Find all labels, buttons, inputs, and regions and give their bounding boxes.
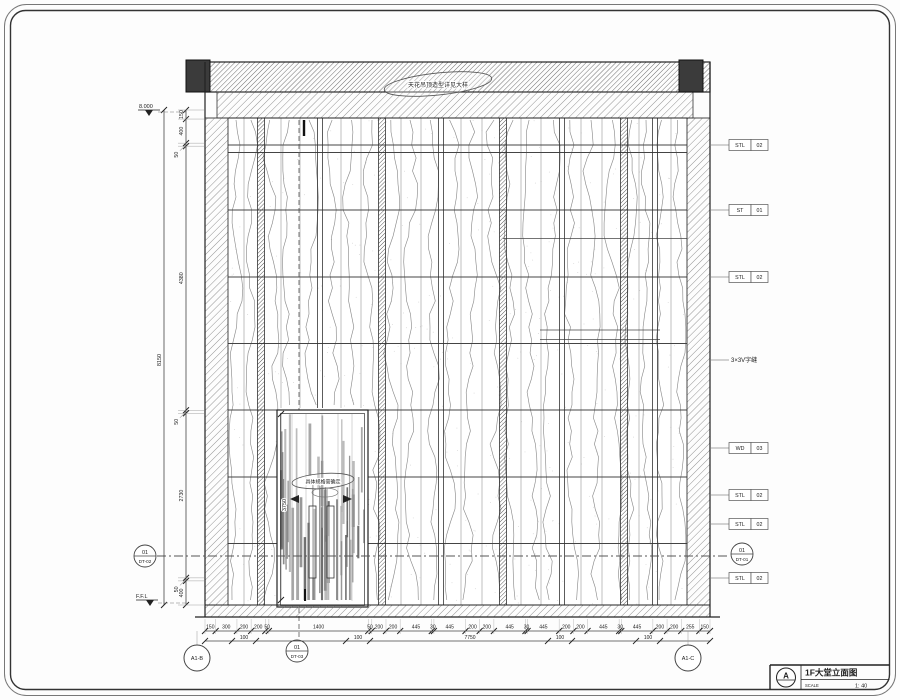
material-tags: STL02ST01STL02WD03STL02STL02STL023×3V字缝 bbox=[711, 140, 768, 584]
material-tag: STL02 bbox=[711, 519, 768, 530]
dim-label: 400 bbox=[179, 588, 185, 597]
dim-label: 200 bbox=[670, 625, 679, 631]
material-tag: WD03 bbox=[711, 443, 768, 454]
dim-label: 445 bbox=[599, 625, 608, 631]
svg-text:02: 02 bbox=[757, 275, 763, 281]
svg-text:WD: WD bbox=[736, 446, 745, 452]
scale-label: SCALE bbox=[805, 683, 819, 688]
svg-text:A1-B: A1-B bbox=[191, 656, 204, 662]
dim-label: 255 bbox=[686, 625, 695, 631]
door-height-label: 3750 bbox=[282, 499, 288, 511]
dim-label: 200 bbox=[254, 625, 263, 631]
dim-label: 100 bbox=[644, 635, 653, 641]
svg-text:STL: STL bbox=[735, 143, 745, 149]
dim-label: 200 bbox=[240, 625, 249, 631]
svg-text:01: 01 bbox=[739, 548, 745, 554]
floor-level-label: F.F.L bbox=[136, 594, 148, 600]
dim-label: 400 bbox=[179, 127, 185, 136]
dim-label: 50 bbox=[367, 625, 373, 631]
dim-label: 100 bbox=[240, 635, 249, 641]
dim-label: 200 bbox=[468, 625, 477, 631]
svg-text:DT-01: DT-01 bbox=[736, 557, 749, 562]
scale-value: 1: 40 bbox=[855, 684, 867, 690]
dim-label: 150 bbox=[701, 625, 710, 631]
dim-label: 300 bbox=[222, 625, 231, 631]
level-triangle-icon bbox=[145, 110, 153, 116]
groove-note: 3×3V字缝 bbox=[731, 356, 757, 364]
dim-label: 445 bbox=[539, 625, 548, 631]
detail-ref-bubble: 01DT-02 bbox=[134, 545, 156, 567]
material-tag: STL02 bbox=[711, 140, 768, 151]
svg-text:01: 01 bbox=[294, 645, 300, 651]
dim-label: 30 bbox=[430, 625, 436, 631]
door-pull-right bbox=[327, 506, 334, 578]
grid-bubbles: A1-BA1-C bbox=[184, 631, 701, 671]
door-feature-panel bbox=[277, 410, 368, 607]
door-pull-left bbox=[309, 506, 316, 578]
svg-text:STL: STL bbox=[735, 576, 745, 582]
svg-text:02: 02 bbox=[757, 143, 763, 149]
bottom-dimension-chain: 1503002002005014005020020044530445200200… bbox=[202, 619, 713, 644]
svg-text:STL: STL bbox=[735, 275, 745, 281]
material-tag: STL02 bbox=[711, 573, 768, 584]
door-note-text: 具体规格需确定 bbox=[305, 479, 340, 486]
dim-label: 30 bbox=[617, 625, 623, 631]
dim-label: 445 bbox=[446, 625, 455, 631]
dim-label: 445 bbox=[505, 625, 514, 631]
ceiling-note-text: 天花吊顶造型详见大样 bbox=[408, 81, 468, 89]
svg-text:ST: ST bbox=[737, 208, 745, 214]
material-tag: ST01 bbox=[711, 205, 768, 216]
elevation-drawing: 具体规格需确定3750天花吊顶造型详见大样1504005043805027305… bbox=[134, 60, 768, 671]
svg-text:02: 02 bbox=[757, 493, 763, 499]
detail-ref-bubble: 01DT-01 bbox=[731, 543, 753, 565]
svg-text:02: 02 bbox=[757, 576, 763, 582]
detail-letter: A bbox=[783, 672, 789, 681]
elevation-sheet-svg: 具体规格需确定3750天花吊顶造型详见大样1504005043805027305… bbox=[0, 0, 900, 700]
detail-ref-bubble: 01DT-03 bbox=[286, 640, 308, 662]
column-section-right bbox=[679, 60, 703, 92]
dim-label: 445 bbox=[412, 625, 421, 631]
dim-label: 100 bbox=[556, 635, 565, 641]
dim-label: 50 bbox=[174, 419, 180, 425]
total-height-label: 8150 bbox=[157, 354, 163, 366]
dim-label: 50 bbox=[264, 625, 270, 631]
left-dimension-chain: 150400504380502730504008150 bbox=[157, 107, 204, 608]
dim-label: 200 bbox=[389, 625, 398, 631]
top-level-label: 8.000 bbox=[139, 104, 153, 110]
dim-label: 200 bbox=[375, 625, 384, 631]
dim-label: 200 bbox=[656, 625, 665, 631]
material-tag: STL02 bbox=[711, 490, 768, 501]
svg-text:STL: STL bbox=[735, 522, 745, 528]
dim-label: 7750 bbox=[464, 635, 475, 641]
column-section-left bbox=[186, 60, 210, 92]
dim-label: 2730 bbox=[179, 490, 185, 502]
svg-text:01: 01 bbox=[142, 550, 148, 556]
dim-label: 445 bbox=[633, 625, 642, 631]
dim-label: 4380 bbox=[179, 272, 185, 284]
dim-label: 150 bbox=[179, 110, 185, 119]
svg-text:02: 02 bbox=[757, 522, 763, 528]
title-block: A 1F大堂立面图 SCALE 1: 40 bbox=[770, 665, 890, 690]
svg-text:03: 03 bbox=[757, 446, 763, 452]
material-tag: STL02 bbox=[711, 272, 768, 283]
drawing-title: 1F大堂立面图 bbox=[805, 668, 857, 678]
dim-label: 50 bbox=[174, 152, 180, 158]
drawing-sheet: 具体规格需确定3750天花吊顶造型详见大样1504005043805027305… bbox=[0, 0, 900, 700]
svg-text:DT-02: DT-02 bbox=[139, 559, 152, 564]
dim-label: 1400 bbox=[313, 625, 324, 631]
svg-text:A1-C: A1-C bbox=[682, 656, 695, 662]
svg-text:STL: STL bbox=[735, 493, 745, 499]
dim-label: 200 bbox=[576, 625, 585, 631]
svg-text:01: 01 bbox=[757, 208, 763, 214]
dim-label: 30 bbox=[524, 625, 530, 631]
dim-label: 200 bbox=[562, 625, 571, 631]
dim-label: 200 bbox=[483, 625, 492, 631]
level-triangle-icon bbox=[146, 600, 154, 606]
svg-text:DT-03: DT-03 bbox=[291, 654, 304, 659]
dim-label: 100 bbox=[354, 635, 363, 641]
dim-label: 150 bbox=[206, 625, 215, 631]
